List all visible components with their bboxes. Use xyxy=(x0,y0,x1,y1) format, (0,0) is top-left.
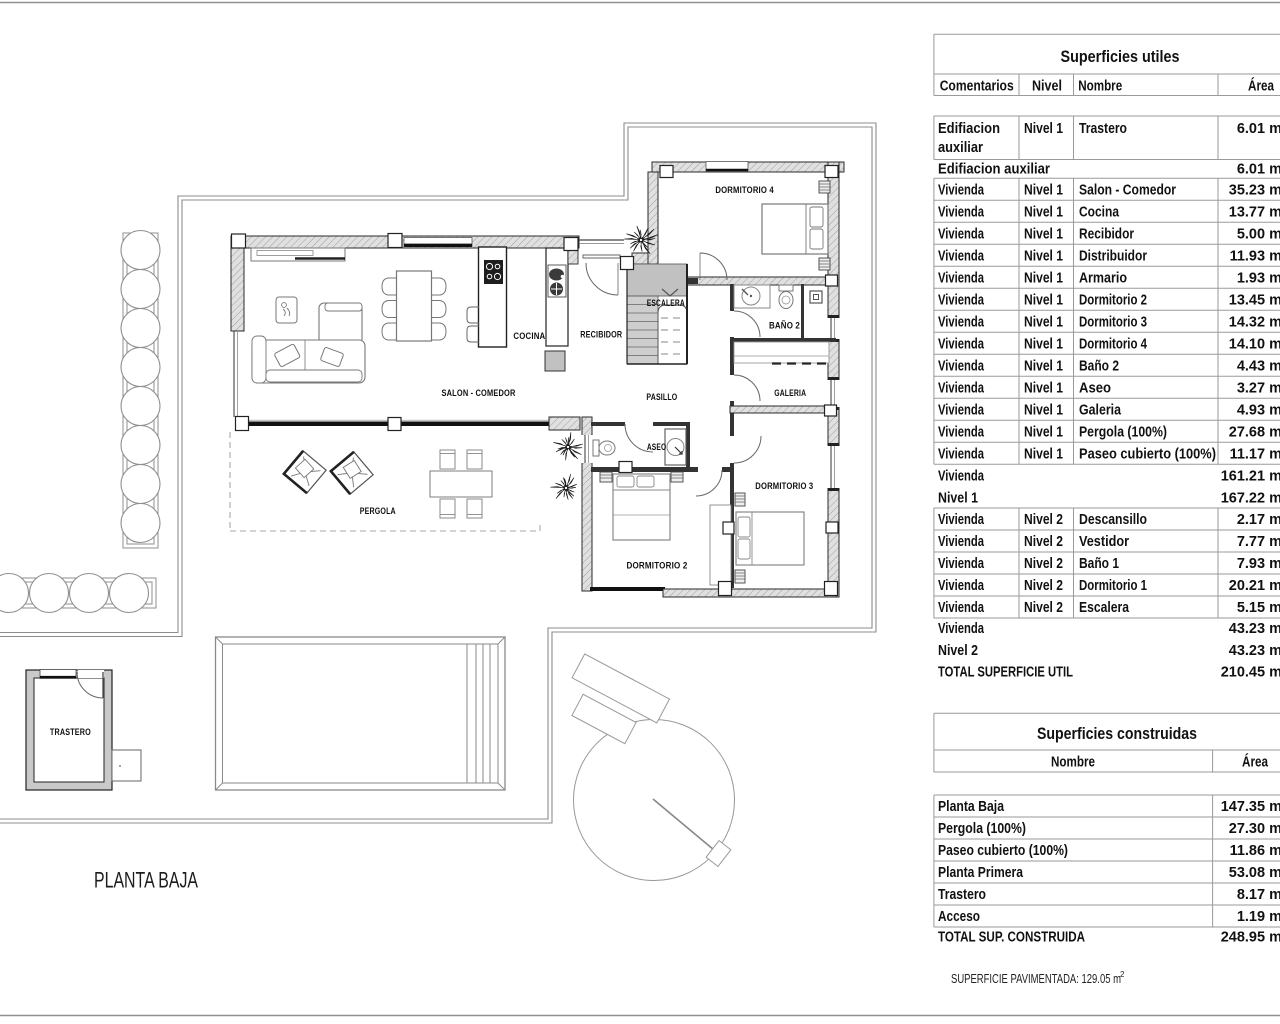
svg-text:DORMITORIO 4: DORMITORIO 4 xyxy=(715,185,773,195)
svg-text:Planta Primera: Planta Primera xyxy=(938,865,1024,881)
svg-text:Vivienda: Vivienda xyxy=(938,402,985,418)
svg-text:Aseo: Aseo xyxy=(1079,380,1111,396)
svg-text:Distribuidor: Distribuidor xyxy=(1079,248,1147,264)
svg-text:13.45 m2: 13.45 m2 xyxy=(1229,292,1280,308)
svg-text:Área: Área xyxy=(1242,754,1269,771)
svg-text:Armario: Armario xyxy=(1079,270,1127,286)
svg-text:ASEO: ASEO xyxy=(647,442,667,452)
svg-text:Salon - Comedor: Salon - Comedor xyxy=(1079,182,1176,198)
svg-text:Descansillo: Descansillo xyxy=(1079,512,1147,528)
svg-text:TRASTERO: TRASTERO xyxy=(50,727,91,737)
svg-text:Vivienda: Vivienda xyxy=(938,314,985,330)
svg-text:248.95 m2: 248.95 m2 xyxy=(1221,930,1280,946)
svg-text:Nivel 1: Nivel 1 xyxy=(1024,358,1063,374)
svg-text:Planta Baja: Planta Baja xyxy=(938,799,1005,815)
svg-text:TOTAL SUP. CONSTRUIDA: TOTAL SUP. CONSTRUIDA xyxy=(938,930,1085,946)
svg-text:Trastero: Trastero xyxy=(1079,121,1127,137)
svg-text:Dormitorio 4: Dormitorio 4 xyxy=(1079,336,1147,352)
svg-text:Nivel 1: Nivel 1 xyxy=(1024,424,1063,440)
svg-text:Nivel 2: Nivel 2 xyxy=(1024,600,1063,616)
svg-text:SUPERFICIE PAVIMENTADA: 129.05: SUPERFICIE PAVIMENTADA: 129.05 m xyxy=(951,972,1121,986)
svg-text:Baño 2: Baño 2 xyxy=(1079,358,1119,374)
svg-text:Nivel 1: Nivel 1 xyxy=(1024,182,1063,198)
svg-text:SALON - COMEDOR: SALON - COMEDOR xyxy=(442,388,516,398)
svg-text:Vivienda: Vivienda xyxy=(938,248,985,264)
svg-text:Vivienda: Vivienda xyxy=(938,556,985,572)
svg-text:Pergola (100%): Pergola (100%) xyxy=(1079,424,1167,440)
svg-text:Nombre: Nombre xyxy=(1051,755,1095,771)
svg-text:161.21 m2: 161.21 m2 xyxy=(1221,469,1280,485)
svg-text:auxiliar: auxiliar xyxy=(938,140,983,156)
svg-text:Vivienda: Vivienda xyxy=(938,380,985,396)
svg-text:Vivienda: Vivienda xyxy=(938,512,985,528)
svg-text:COCINA: COCINA xyxy=(513,331,545,341)
svg-text:4.93 m2: 4.93 m2 xyxy=(1237,402,1280,418)
svg-text:Vivienda: Vivienda xyxy=(938,292,985,308)
svg-text:Acceso: Acceso xyxy=(938,909,980,925)
svg-text:4.43 m2: 4.43 m2 xyxy=(1237,358,1280,374)
svg-text:GALERIA: GALERIA xyxy=(774,388,806,398)
svg-text:Comentarios: Comentarios xyxy=(940,79,1014,95)
svg-text:Vivienda: Vivienda xyxy=(938,424,985,440)
svg-text:5.15 m2: 5.15 m2 xyxy=(1237,600,1280,616)
svg-text:Vivienda: Vivienda xyxy=(938,226,985,242)
svg-text:Dormitorio 2: Dormitorio 2 xyxy=(1079,292,1147,308)
svg-text:PERGOLA: PERGOLA xyxy=(360,506,396,516)
svg-text:20.21 m2: 20.21 m2 xyxy=(1229,578,1280,594)
svg-text:Nivel 1: Nivel 1 xyxy=(1024,292,1063,308)
svg-text:Nivel 1: Nivel 1 xyxy=(1024,336,1063,352)
svg-text:6.01 m2: 6.01 m2 xyxy=(1237,121,1280,137)
svg-text:Vivienda: Vivienda xyxy=(938,358,985,374)
svg-text:35.23 m2: 35.23 m2 xyxy=(1229,182,1280,198)
svg-text:Superficies utiles: Superficies utiles xyxy=(1061,48,1180,66)
svg-text:Área: Área xyxy=(1248,78,1275,95)
svg-text:43.23 m2: 43.23 m2 xyxy=(1229,643,1280,659)
svg-text:14.32 m2: 14.32 m2 xyxy=(1229,314,1280,330)
svg-text:Nivel 1: Nivel 1 xyxy=(1024,314,1063,330)
svg-text:Nivel 2: Nivel 2 xyxy=(1024,578,1063,594)
svg-text:Vivienda: Vivienda xyxy=(938,578,985,594)
svg-text:7.93 m2: 7.93 m2 xyxy=(1237,556,1280,572)
svg-text:Nivel 2: Nivel 2 xyxy=(1024,556,1063,572)
svg-text:Vivienda: Vivienda xyxy=(938,621,985,637)
svg-text:Paseo cubierto (100%): Paseo cubierto (100%) xyxy=(1079,446,1216,462)
svg-text:8.17 m2: 8.17 m2 xyxy=(1237,887,1280,903)
svg-text:DORMITORIO 2: DORMITORIO 2 xyxy=(627,561,688,571)
svg-text:RECIBIDOR: RECIBIDOR xyxy=(580,330,622,340)
svg-text:Nivel 2: Nivel 2 xyxy=(1024,534,1063,550)
svg-text:Nivel: Nivel xyxy=(1032,79,1062,95)
svg-text:Trastero: Trastero xyxy=(938,887,986,903)
svg-text:210.45 m2: 210.45 m2 xyxy=(1221,665,1280,681)
svg-text:Vivienda: Vivienda xyxy=(938,446,985,462)
svg-text:Nivel 1: Nivel 1 xyxy=(1024,226,1063,242)
svg-text:Pergola (100%): Pergola (100%) xyxy=(938,821,1026,837)
svg-text:Nombre: Nombre xyxy=(1078,79,1122,95)
svg-text:11.17 m2: 11.17 m2 xyxy=(1230,446,1280,462)
svg-text:DORMITORIO 3: DORMITORIO 3 xyxy=(755,481,813,491)
svg-text:Nivel 2: Nivel 2 xyxy=(1024,512,1063,528)
svg-text:Vivienda: Vivienda xyxy=(938,270,985,286)
svg-text:Recibidor: Recibidor xyxy=(1079,226,1134,242)
svg-text:PLANTA BAJA: PLANTA BAJA xyxy=(94,868,198,893)
svg-text:5.00 m2: 5.00 m2 xyxy=(1237,226,1280,242)
svg-text:Vivienda: Vivienda xyxy=(938,182,985,198)
svg-text:14.10 m2: 14.10 m2 xyxy=(1229,336,1280,352)
svg-text:27.30 m2: 27.30 m2 xyxy=(1229,821,1280,837)
svg-text:Nivel 1: Nivel 1 xyxy=(1024,248,1063,264)
svg-text:PASILLO: PASILLO xyxy=(646,392,677,402)
svg-text:Nivel 1: Nivel 1 xyxy=(1024,446,1063,462)
svg-text:6.01 m2: 6.01 m2 xyxy=(1237,162,1280,178)
svg-text:Nivel 1: Nivel 1 xyxy=(1024,380,1063,396)
svg-text:Dormitorio 3: Dormitorio 3 xyxy=(1079,314,1147,330)
svg-text:11.93 m2: 11.93 m2 xyxy=(1230,248,1280,264)
svg-text:Vestidor: Vestidor xyxy=(1079,534,1129,550)
svg-text:Escalera: Escalera xyxy=(1079,600,1130,616)
svg-text:3.27 m2: 3.27 m2 xyxy=(1237,380,1280,396)
svg-text:43.23 m2: 43.23 m2 xyxy=(1229,621,1280,637)
svg-text:Nivel 1: Nivel 1 xyxy=(1024,270,1063,286)
svg-text:1.93 m2: 1.93 m2 xyxy=(1237,270,1280,286)
svg-text:Baño 1: Baño 1 xyxy=(1079,556,1119,572)
svg-text:Superficies construidas: Superficies construidas xyxy=(1037,725,1197,743)
svg-text:53.08 m2: 53.08 m2 xyxy=(1229,865,1280,881)
svg-text:Nivel 2: Nivel 2 xyxy=(938,643,978,659)
svg-text:13.77 m2: 13.77 m2 xyxy=(1229,204,1280,220)
svg-text:ESCALERA: ESCALERA xyxy=(647,298,685,308)
svg-text:Paseo cubierto (100%): Paseo cubierto (100%) xyxy=(938,843,1068,859)
svg-text:Cocina: Cocina xyxy=(1079,204,1120,220)
svg-text:11.86 m2: 11.86 m2 xyxy=(1230,843,1280,859)
svg-text:1.19 m2: 1.19 m2 xyxy=(1237,909,1280,925)
svg-text:167.22 m2: 167.22 m2 xyxy=(1221,491,1280,507)
svg-text:Vivienda: Vivienda xyxy=(938,336,985,352)
svg-text:147.35 m2: 147.35 m2 xyxy=(1221,799,1280,815)
svg-text:TOTAL SUPERFICIE UTIL: TOTAL SUPERFICIE UTIL xyxy=(938,665,1073,681)
svg-text:Nivel 1: Nivel 1 xyxy=(938,491,978,507)
svg-text:2.17 m2: 2.17 m2 xyxy=(1237,512,1280,528)
svg-text:Vivienda: Vivienda xyxy=(938,600,985,616)
svg-text:2: 2 xyxy=(1120,970,1125,979)
svg-text:Nivel 1: Nivel 1 xyxy=(1024,204,1063,220)
svg-text:Vivienda: Vivienda xyxy=(938,204,985,220)
svg-text:Vivienda: Vivienda xyxy=(938,469,985,485)
svg-text:Nivel 1: Nivel 1 xyxy=(1024,121,1063,137)
svg-text:Edifiacion auxiliar: Edifiacion auxiliar xyxy=(938,162,1050,178)
svg-text:Edifiacion: Edifiacion xyxy=(938,121,1000,137)
svg-text:Dormitorio 1: Dormitorio 1 xyxy=(1079,578,1147,594)
svg-text:Nivel 1: Nivel 1 xyxy=(1024,402,1063,418)
svg-text:Vivienda: Vivienda xyxy=(938,534,985,550)
svg-text:BAÑO 2: BAÑO 2 xyxy=(769,321,800,331)
svg-text:27.68 m2: 27.68 m2 xyxy=(1229,424,1280,440)
svg-text:Galeria: Galeria xyxy=(1079,402,1122,418)
svg-text:7.77 m2: 7.77 m2 xyxy=(1237,534,1280,550)
